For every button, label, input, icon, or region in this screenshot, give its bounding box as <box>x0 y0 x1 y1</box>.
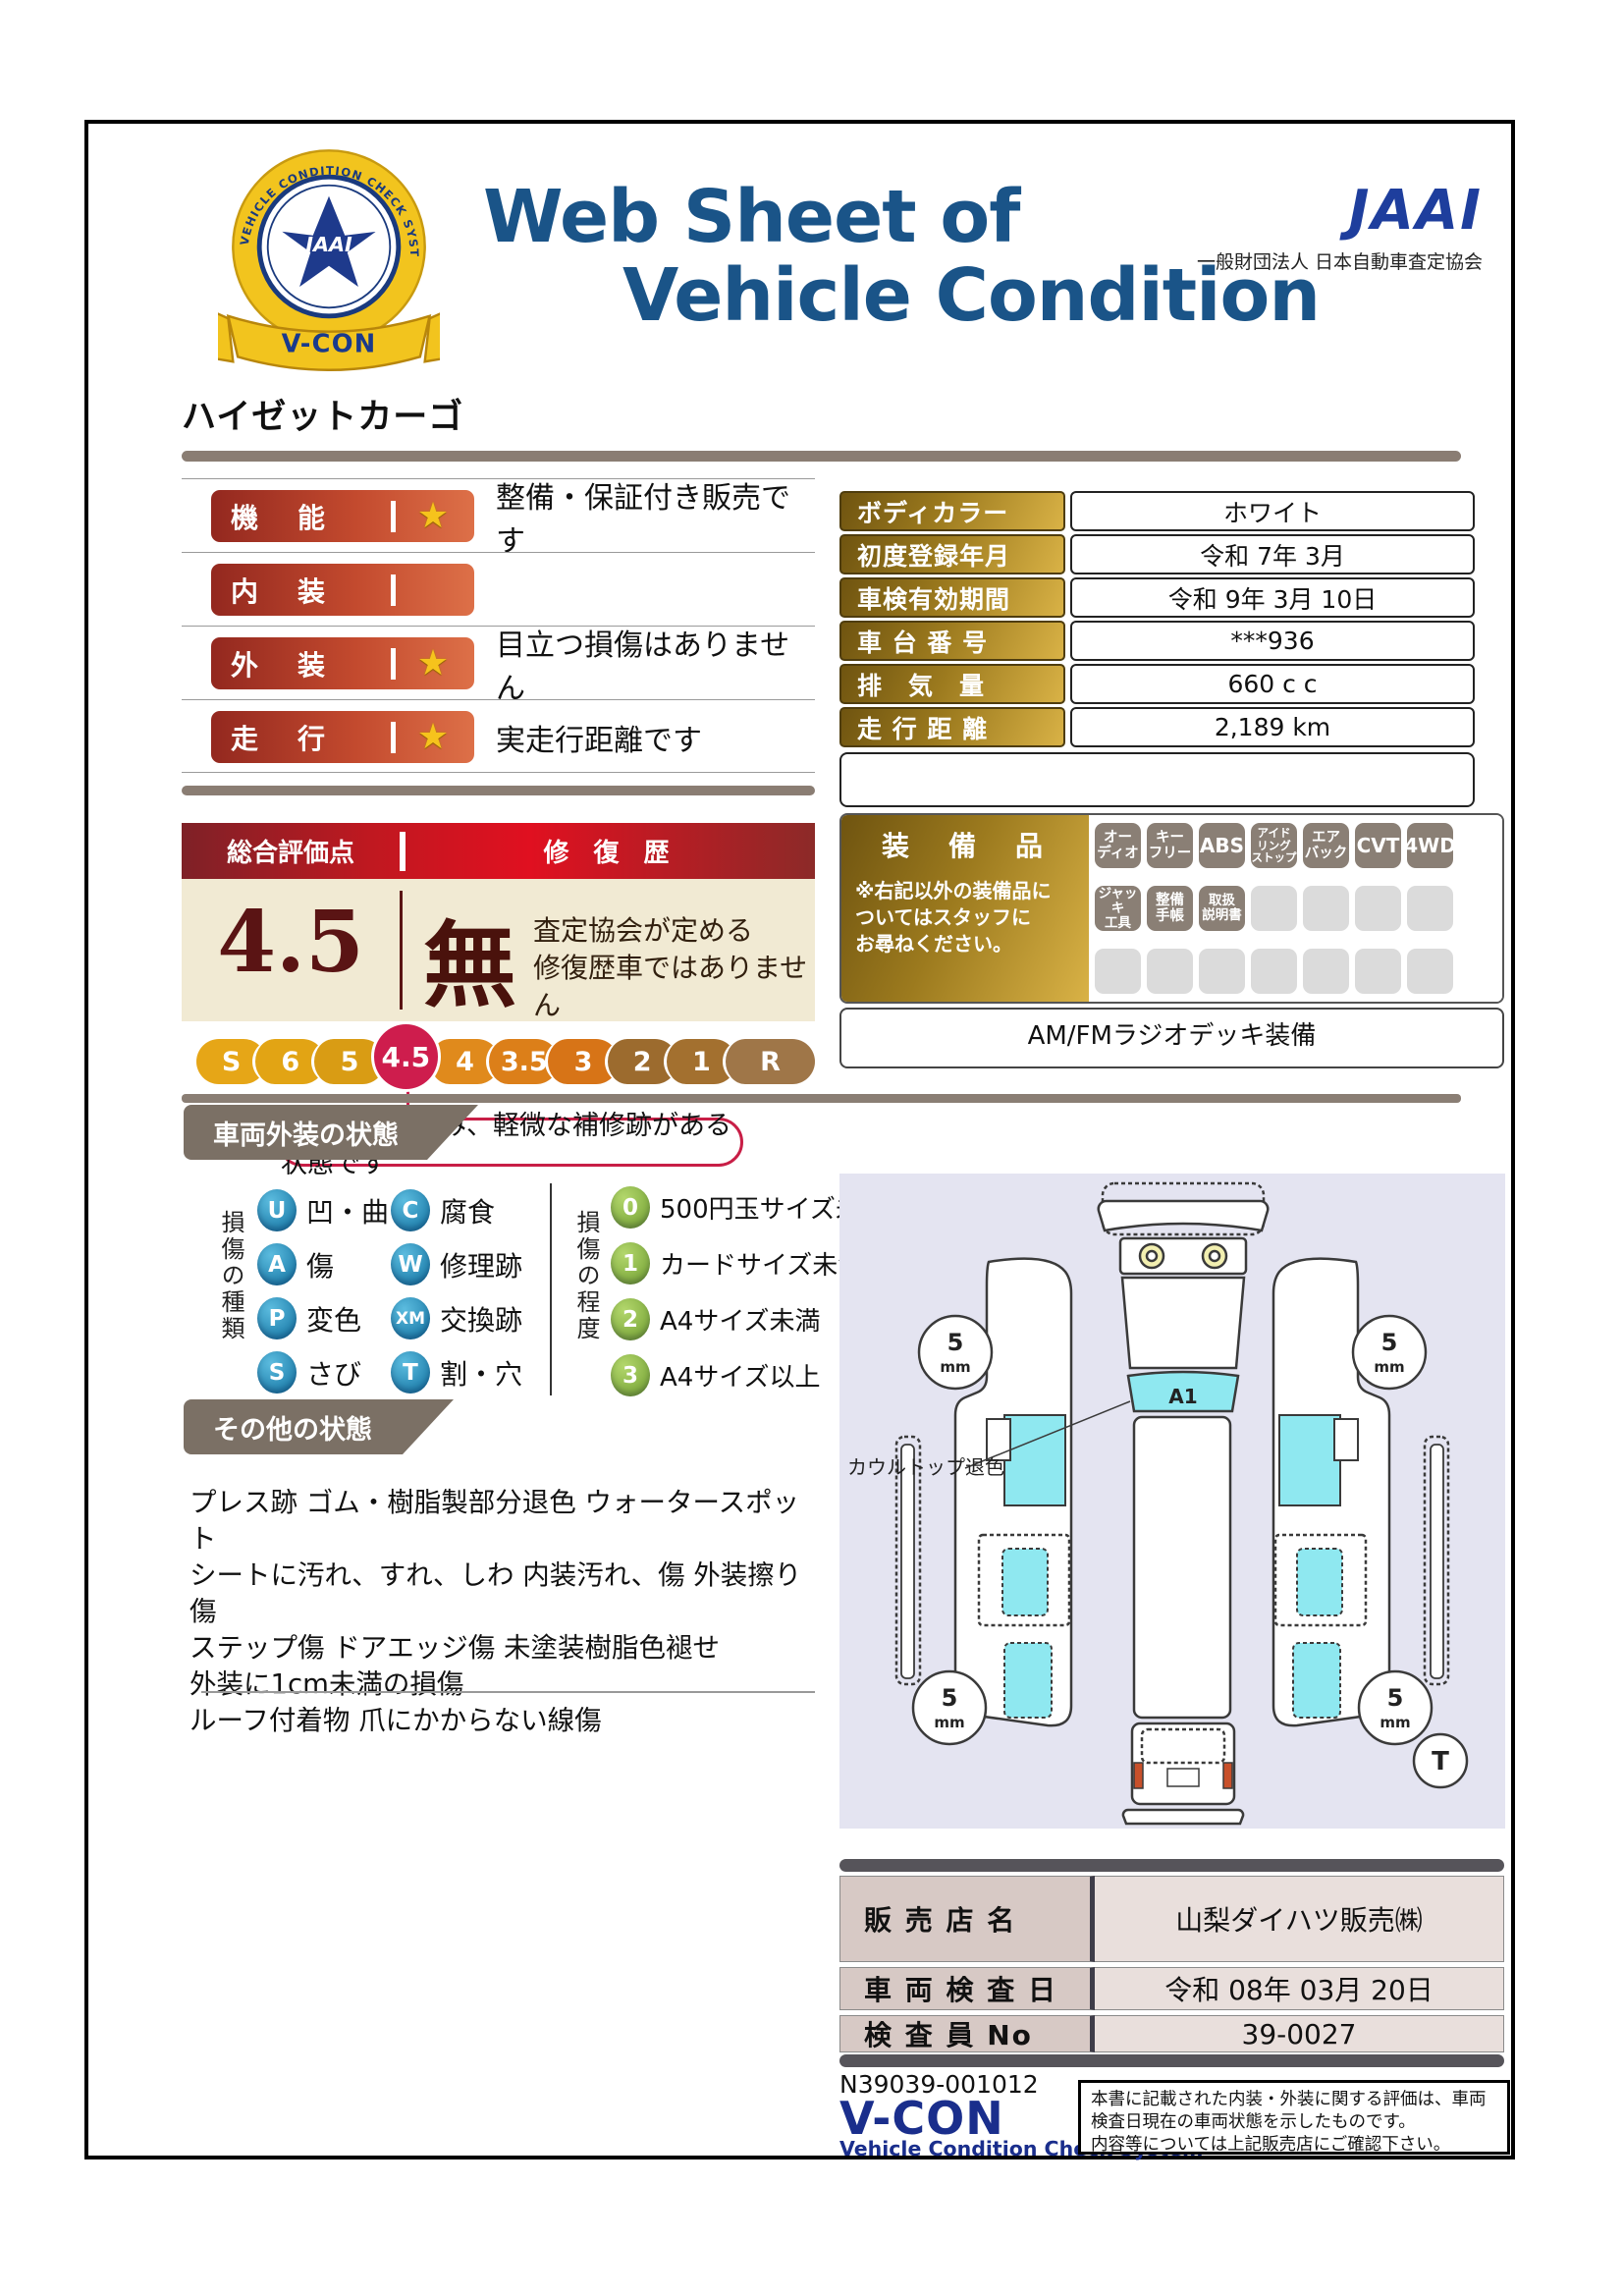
jaai-logo: JAAI <box>1227 179 1483 243</box>
damage-kind-title: 損傷の種類 <box>214 1210 248 1406</box>
degree-badge: 2 <box>611 1298 650 1340</box>
degree-label: A4サイズ未満 <box>660 1298 821 1340</box>
info-label: 車 台 番 号 <box>839 621 1065 661</box>
dealer-value: 令和 08年 03月 20日 <box>1095 1967 1504 2010</box>
info-label: 車検有効期間 <box>839 577 1065 618</box>
overall-score-box: 総合評価点 修 復 歴 4.5 無 査定協会が定める 修復歴車ではありません <box>182 823 815 1021</box>
overall-score-value: 4.5 <box>182 893 400 992</box>
title-divider <box>182 451 1461 462</box>
tread-value: 5 <box>1387 1684 1404 1712</box>
degree-badge: 1 <box>611 1242 650 1285</box>
footer-note: 本書に記載された内装・外装に関する評価は、車両 検査日現在の車両状態を示したもの… <box>1078 2080 1510 2155</box>
rating-label: 外 装 <box>231 644 387 683</box>
jaai-organization-name: 一般財団法人 日本自動車査定協会 <box>1129 247 1483 274</box>
exterior-section-banner: 車両外装の状態 <box>184 1105 478 1160</box>
rating-comment: 目立つ損傷はありません <box>496 627 815 700</box>
star-icon: ★ <box>411 643 455 683</box>
repair-note: 査定協会が定める 修復歴車ではありません <box>533 912 815 1024</box>
sliding-door-window <box>1002 1549 1048 1615</box>
equipment-badge-maintenance-book: 整備 手帳 <box>1147 886 1193 931</box>
rating-label: 機 能 <box>231 497 387 536</box>
degree-label: A4サイズ以上 <box>660 1354 821 1396</box>
star-icon: ★ <box>411 496 455 536</box>
sheet-title-line1: Web Sheet of <box>483 175 1019 259</box>
equipment-badge-empty <box>1355 949 1401 994</box>
equipment-badge-airbag: エア バック <box>1303 823 1349 868</box>
vcon-badge-icon: JAAI VEHICLE CONDITION CHECK SYSTEM V-CO… <box>218 143 440 371</box>
rating-bar-exterior: 外 装★ <box>211 637 474 689</box>
dealer-row-inspector-no: 検 査 員 No 39-0027 <box>839 2015 1504 2052</box>
tread-unit: mm <box>934 1714 964 1731</box>
damage-code-label: 凹・曲 <box>306 1189 389 1231</box>
rating-label: 内 装 <box>231 571 387 610</box>
dealer-label: 車 両 検 査 日 <box>839 1967 1095 2010</box>
equipment-badge-empty <box>1251 949 1297 994</box>
dealer-row-inspection-date: 車 両 検 査 日 令和 08年 03月 20日 <box>839 1967 1504 2010</box>
info-label: 排 気 量 <box>839 664 1065 704</box>
equipment-label-area: 装 備 品 ※右記以外の装備品に ついてはスタッフに お尋ねください。 <box>841 815 1089 1002</box>
damage-code-label: 割・穴 <box>440 1351 522 1394</box>
damage-code-badge: P <box>257 1297 297 1339</box>
rating-row-function: 機 能★ 整備・保証付き販売です <box>182 478 815 552</box>
other-condition-text: プレス跡 ゴム・樹脂製部分退色 ウォータースポット シートに汚れ、すれ、しわ 内… <box>189 1485 818 1739</box>
star-icon: ★ <box>411 717 455 757</box>
rating-row-interior: 内 装 <box>182 552 815 626</box>
damage-code-badge: C <box>391 1189 430 1231</box>
damage-code-badge: XM <box>391 1297 430 1339</box>
damage-degree-title: 損傷の程度 <box>569 1210 604 1406</box>
rating-row-exterior: 外 装★ 目立つ損傷はありません <box>182 626 815 699</box>
info-value: 660 c c <box>1070 664 1475 704</box>
degree-badge: 3 <box>611 1354 650 1396</box>
tread-unit: mm <box>1374 1358 1404 1376</box>
dealer-label: 販 売 店 名 <box>839 1876 1095 1962</box>
corner-mark: T <box>1432 1747 1449 1777</box>
equipment-badge-empty <box>1303 886 1349 931</box>
vehicle-condition-sheet: JAAI VEHICLE CONDITION CHECK SYSTEM V-CO… <box>0 0 1623 2296</box>
rating-bar-interior: 内 装 <box>211 564 474 616</box>
tread-value: 5 <box>942 1684 958 1712</box>
taillight-left-icon <box>1134 1763 1143 1788</box>
rating-row-mileage: 走 行★ 実走行距離です <box>182 699 815 773</box>
rear-quarter-window <box>1004 1643 1052 1718</box>
vehicle-name: ハイゼットカーゴ <box>182 389 463 439</box>
dealer-table-top-bar <box>839 1859 1504 1872</box>
dealer-value: 山梨ダイハツ販売㈱ <box>1095 1876 1504 1962</box>
damage-code-label: 傷 <box>306 1243 334 1285</box>
scale-segment: R <box>723 1039 815 1084</box>
damage-code-badge: A <box>257 1243 297 1285</box>
info-value: ***936 <box>1070 621 1475 661</box>
section-divider <box>182 786 815 795</box>
equipment-badge-cvt: CVT <box>1355 823 1401 868</box>
equipment-badge-idling-stop: アイド リング ストップ <box>1251 823 1297 868</box>
degree-label: カードサイズ未満 <box>660 1242 863 1285</box>
front-bumper <box>1099 1201 1269 1230</box>
damage-code-badge: S <box>257 1351 297 1394</box>
tread-value: 5 <box>1381 1329 1398 1356</box>
roof <box>1134 1417 1230 1718</box>
damage-code-label: さび <box>306 1351 361 1394</box>
equipment-badge-empty <box>1251 886 1297 931</box>
repair-history-header: 修 復 歴 <box>406 833 815 869</box>
damage-code-label: 腐食 <box>440 1189 495 1231</box>
equipment-badge-keyfree: キー フリー <box>1147 823 1193 868</box>
equipment-badge-empty <box>1147 949 1193 994</box>
info-label: ボディカラー <box>839 491 1065 531</box>
damage-code-label: 変色 <box>306 1297 361 1339</box>
tread-unit: mm <box>940 1358 970 1376</box>
info-empty-box <box>839 752 1475 807</box>
dealer-value: 39-0027 <box>1095 2015 1504 2052</box>
rear-bumper <box>1123 1810 1243 1824</box>
info-value: 2,189 km <box>1070 707 1475 747</box>
other-divider <box>201 1691 815 1693</box>
rating-label: 走 行 <box>231 718 387 757</box>
equipment-badge-abs: ABS <box>1199 823 1245 868</box>
equipment-badge-empty <box>1355 886 1401 931</box>
info-label: 初度登録年月 <box>839 534 1065 574</box>
overall-score-header: 総合評価点 <box>182 833 400 869</box>
bar-separator <box>391 501 396 532</box>
rocker-panel <box>901 1445 914 1678</box>
damage-code-label: 交換跡 <box>440 1297 522 1339</box>
exterior-section-line <box>182 1094 1461 1103</box>
damage-code-label: 修理跡 <box>440 1243 522 1285</box>
equipment-badge-manual: 取扱 説明書 <box>1199 886 1245 931</box>
degree-badge: 0 <box>611 1186 650 1229</box>
damage-marker: A1 <box>1168 1385 1197 1408</box>
tread-value: 5 <box>947 1329 964 1356</box>
front-door-window <box>1004 1415 1065 1505</box>
windshield <box>1122 1278 1244 1368</box>
damage-code-badge: U <box>257 1189 297 1231</box>
equipment-badge-4wd: 4WD <box>1407 823 1453 868</box>
body-divider <box>400 891 403 1010</box>
taillight-right-icon <box>1223 1763 1232 1788</box>
legend-divider <box>550 1183 552 1395</box>
rating-scale: S 6 5 4.5 4 3.5 3 2 1 R <box>196 1039 815 1084</box>
overall-header: 総合評価点 修 復 歴 <box>182 823 815 879</box>
damage-code-badge: W <box>391 1243 430 1285</box>
info-value: 令和 9年 3月 10日 <box>1070 577 1475 618</box>
bar-separator <box>391 574 396 606</box>
equipment-badge-empty <box>1199 949 1245 994</box>
equipment-badge-empty <box>1303 949 1349 994</box>
equipment-extra-box: AM/FMラジオデッキ装備 <box>839 1008 1504 1068</box>
equipment-badge-empty <box>1407 949 1453 994</box>
rating-comment: 実走行距離です <box>496 700 702 774</box>
equipment-title: 装 備 品 <box>841 825 1089 864</box>
car-diagram: 5 mm 5 mm 5 mm 5 mm A1 T カウルトップ退色 <box>839 1174 1505 1829</box>
scale-segment-selected: 4.5 <box>371 1021 441 1092</box>
equipment-badge-jack-tools: ジャッキ 工具 <box>1095 886 1141 931</box>
tread-unit: mm <box>1380 1714 1410 1731</box>
dealer-table-bottom-bar <box>839 2054 1504 2067</box>
info-value: ホワイト <box>1070 491 1475 531</box>
cowl-top-annotation: カウルトップ退色 <box>847 1455 1004 1479</box>
car-diagram-panel: 5 mm 5 mm 5 mm 5 mm A1 T カウルトップ退色 <box>839 1174 1505 1829</box>
info-value: 令和 7年 3月 <box>1070 534 1475 574</box>
dealer-row-shop: 販 売 店 名 山梨ダイハツ販売㈱ <box>839 1876 1504 1962</box>
equipment-badge-empty <box>1407 886 1453 931</box>
license-plate <box>1167 1769 1199 1786</box>
bar-separator <box>391 722 396 753</box>
info-label: 走 行 距 離 <box>839 707 1065 747</box>
rating-bar-mileage: 走 行★ <box>211 711 474 763</box>
badge-ribbon-text: V-CON <box>282 329 377 358</box>
rating-comment: 整備・保証付き販売です <box>496 479 815 553</box>
badge-star-text: JAAI <box>301 233 352 256</box>
bar-separator <box>391 648 396 680</box>
equipment-note: ※右記以外の装備品に ついてはスタッフに お尋ねください。 <box>855 878 1051 957</box>
repair-flag: 無 <box>423 891 516 1025</box>
dealer-label: 検 査 員 No <box>839 2015 1095 2052</box>
rating-bar-function: 機 能★ <box>211 490 474 542</box>
equipment-badge-audio: オー ディオ <box>1095 823 1141 868</box>
equipment-badge-empty <box>1095 949 1141 994</box>
damage-code-badge: T <box>391 1351 430 1394</box>
overall-body: 4.5 無 査定協会が定める 修復歴車ではありません <box>182 879 815 1021</box>
